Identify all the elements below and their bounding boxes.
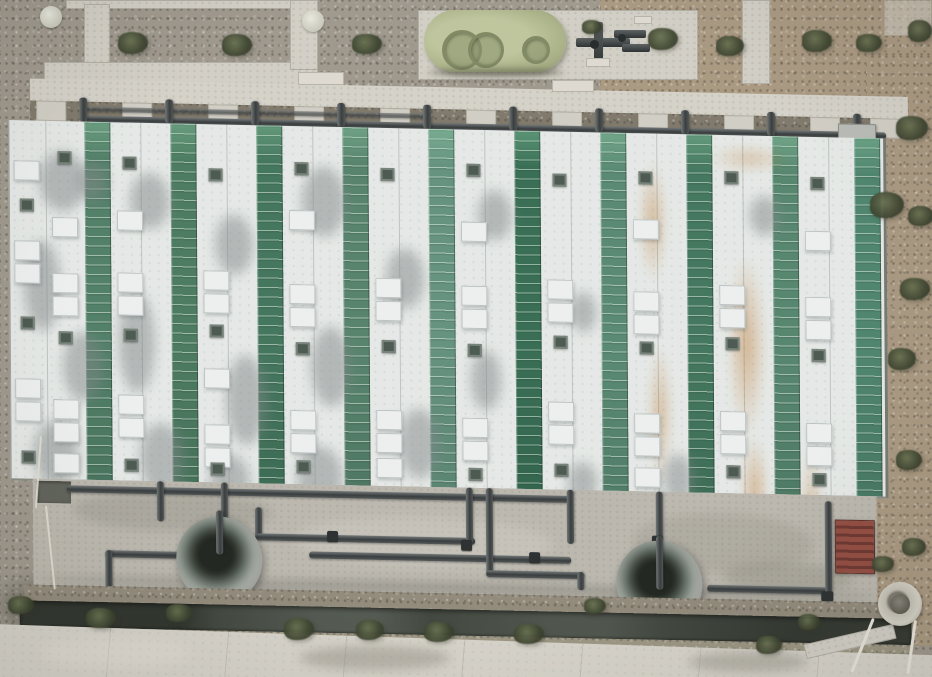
bush <box>222 34 252 56</box>
roof-hatch <box>806 423 832 444</box>
roof-vent <box>296 342 310 355</box>
apron-pipe <box>486 488 494 576</box>
roof-hatch <box>204 424 230 445</box>
roof-hatch <box>720 411 746 432</box>
roof-hatch <box>117 272 143 293</box>
roof-smudge <box>311 326 352 407</box>
pad-equipment-box <box>586 58 610 67</box>
roof-vent <box>211 462 225 475</box>
roof-vent <box>726 337 740 350</box>
roof-hatch <box>548 401 574 422</box>
pipe-stub <box>509 107 517 131</box>
roof <box>8 120 888 499</box>
tank-feed-pipe <box>656 536 663 590</box>
apron-pipe <box>656 492 663 540</box>
walkway-pier <box>36 101 66 122</box>
roof-vent <box>466 164 480 177</box>
roof-smudge <box>570 292 596 333</box>
valve-knob <box>590 40 599 49</box>
roof-hatch <box>52 217 78 238</box>
roof-hatch <box>118 417 144 438</box>
roof-hatch <box>117 295 143 316</box>
pad-equipment-box <box>634 16 652 24</box>
pipe-stub <box>595 108 603 132</box>
roof-hatch <box>289 210 315 231</box>
roof-green-stripe <box>342 127 370 486</box>
apron-pipe <box>105 550 112 588</box>
roof-vent <box>57 151 71 164</box>
roof-vent <box>20 198 34 211</box>
apron-pipe <box>466 488 473 544</box>
roof-hatch <box>290 410 316 431</box>
roof-hatch <box>634 467 660 488</box>
red-access-stair <box>835 519 875 574</box>
roof-smudge <box>750 196 780 237</box>
roof-smudge <box>471 350 501 411</box>
roof-smudge <box>226 355 267 446</box>
manhole-cover <box>302 10 324 32</box>
apron-opening <box>37 481 71 504</box>
apron-pipe <box>567 490 574 544</box>
roof-vent <box>297 460 311 473</box>
roof-hatch <box>377 458 403 479</box>
roof-hatch <box>204 368 230 389</box>
roof-hatch <box>14 240 40 261</box>
roof-green-stripe <box>772 136 800 495</box>
roof-hatch <box>461 222 487 243</box>
roof-hatch <box>290 433 316 454</box>
roof-hatch <box>805 297 831 318</box>
roof-vent <box>640 341 654 354</box>
roof-vent <box>552 173 566 186</box>
roof-vent <box>469 468 483 481</box>
road-wet-patch <box>688 652 808 672</box>
aerial-photo <box>0 0 932 677</box>
roof-hatch <box>375 301 401 322</box>
pipe-fitting <box>529 552 540 563</box>
roof-vent <box>382 340 396 353</box>
roof-hatch <box>117 210 143 231</box>
road-light-band <box>40 638 190 668</box>
pipe-stub <box>681 110 689 134</box>
roof-hatch <box>462 441 488 462</box>
roof-hatch <box>53 296 79 317</box>
roof-hatch <box>375 278 401 299</box>
roof-hatch <box>15 401 41 422</box>
pipe-stub <box>337 103 345 127</box>
roof-hatch <box>118 394 144 415</box>
tank-port <box>468 32 504 68</box>
pipe-fitting <box>461 540 472 551</box>
roof-hatch <box>289 284 315 305</box>
roof-vent <box>468 344 482 357</box>
roof-hatch <box>53 422 79 443</box>
roof-green-stripe <box>514 131 542 490</box>
roof-hatch <box>547 279 573 300</box>
roof-vent <box>124 329 138 342</box>
roof-hatch <box>14 263 40 284</box>
roof-vent <box>21 316 35 329</box>
walkway-equipment-box <box>298 72 344 85</box>
roof-vent <box>22 450 36 463</box>
roof-vent <box>380 168 394 181</box>
roof-vent <box>812 349 826 362</box>
roof-vent <box>638 171 652 184</box>
pipe-stub <box>423 105 431 129</box>
road-wet-patch <box>300 646 450 670</box>
roof-hatch <box>15 378 41 399</box>
apron-pipe <box>825 501 833 595</box>
roof-vent <box>726 465 740 478</box>
pipe-stub <box>79 98 87 122</box>
roof-hatch <box>54 453 80 474</box>
roof-hatch <box>461 286 487 307</box>
roof-hatch <box>462 418 488 439</box>
tank-feed-pipe <box>216 510 223 554</box>
roof-hatch <box>719 285 745 306</box>
roof-vent <box>810 177 824 190</box>
pipe-stub <box>251 101 259 125</box>
valve-knob <box>618 34 626 42</box>
apron-pipe <box>577 572 584 590</box>
roof-hatch <box>548 424 574 445</box>
roof-hatch <box>376 433 402 454</box>
roof-hatch <box>14 160 40 181</box>
bush <box>352 34 382 54</box>
roof-vent <box>123 156 137 169</box>
roof-hatch <box>720 434 746 455</box>
pipe-fitting <box>327 531 338 542</box>
roof-smudge <box>215 214 253 275</box>
roof-hatch <box>805 320 831 341</box>
roof-hatch <box>806 446 832 467</box>
roof-green-stripe <box>600 132 628 491</box>
roof-hatch <box>633 219 659 240</box>
pipe-stub <box>767 112 775 136</box>
storage-tank <box>424 10 566 72</box>
roof-vent <box>125 459 139 472</box>
bush <box>118 32 148 54</box>
tank-shadow <box>428 68 564 77</box>
roof-smudge <box>399 408 439 479</box>
roof-hatch <box>203 270 229 291</box>
path-vertical-left <box>84 4 110 68</box>
roof-vent <box>209 168 223 181</box>
roof-green-stripe <box>170 123 198 482</box>
path-vertical-right <box>742 0 770 84</box>
roof-vent <box>812 473 826 486</box>
roof-hatch <box>547 302 573 323</box>
roof-vent <box>59 331 73 344</box>
roof-hatch <box>634 413 660 434</box>
pipe-fitting <box>821 591 833 601</box>
roof-smudge <box>78 162 108 203</box>
roof-green-stripe <box>854 138 882 497</box>
manhole-cover <box>40 6 62 28</box>
roof-green-stripe <box>686 134 714 493</box>
roof-hatch <box>633 291 659 312</box>
roof-hatch <box>805 231 831 252</box>
well-hole <box>890 594 910 614</box>
roof-hatch <box>719 308 745 329</box>
roof-vent <box>294 162 308 175</box>
roof-vent <box>554 464 568 477</box>
roof-hatch <box>633 314 659 335</box>
roof-hatch <box>461 309 487 330</box>
roof-hatch <box>289 307 315 328</box>
roof-hatch <box>203 293 229 314</box>
tank-valve-pipe <box>622 44 650 52</box>
roof-hatch <box>53 399 79 420</box>
roof-hatch <box>376 410 402 431</box>
apron-pipe <box>157 481 164 521</box>
roof-vent <box>554 336 568 349</box>
walkway-equipment-box <box>552 80 594 92</box>
pipe-stub <box>165 99 173 123</box>
roof-hatch <box>52 273 78 294</box>
bush <box>908 206 932 226</box>
facility <box>6 78 912 673</box>
roof-vent <box>210 324 224 337</box>
roof-hatch <box>634 436 660 457</box>
roof-vent <box>724 171 738 184</box>
tank-port <box>522 36 550 64</box>
